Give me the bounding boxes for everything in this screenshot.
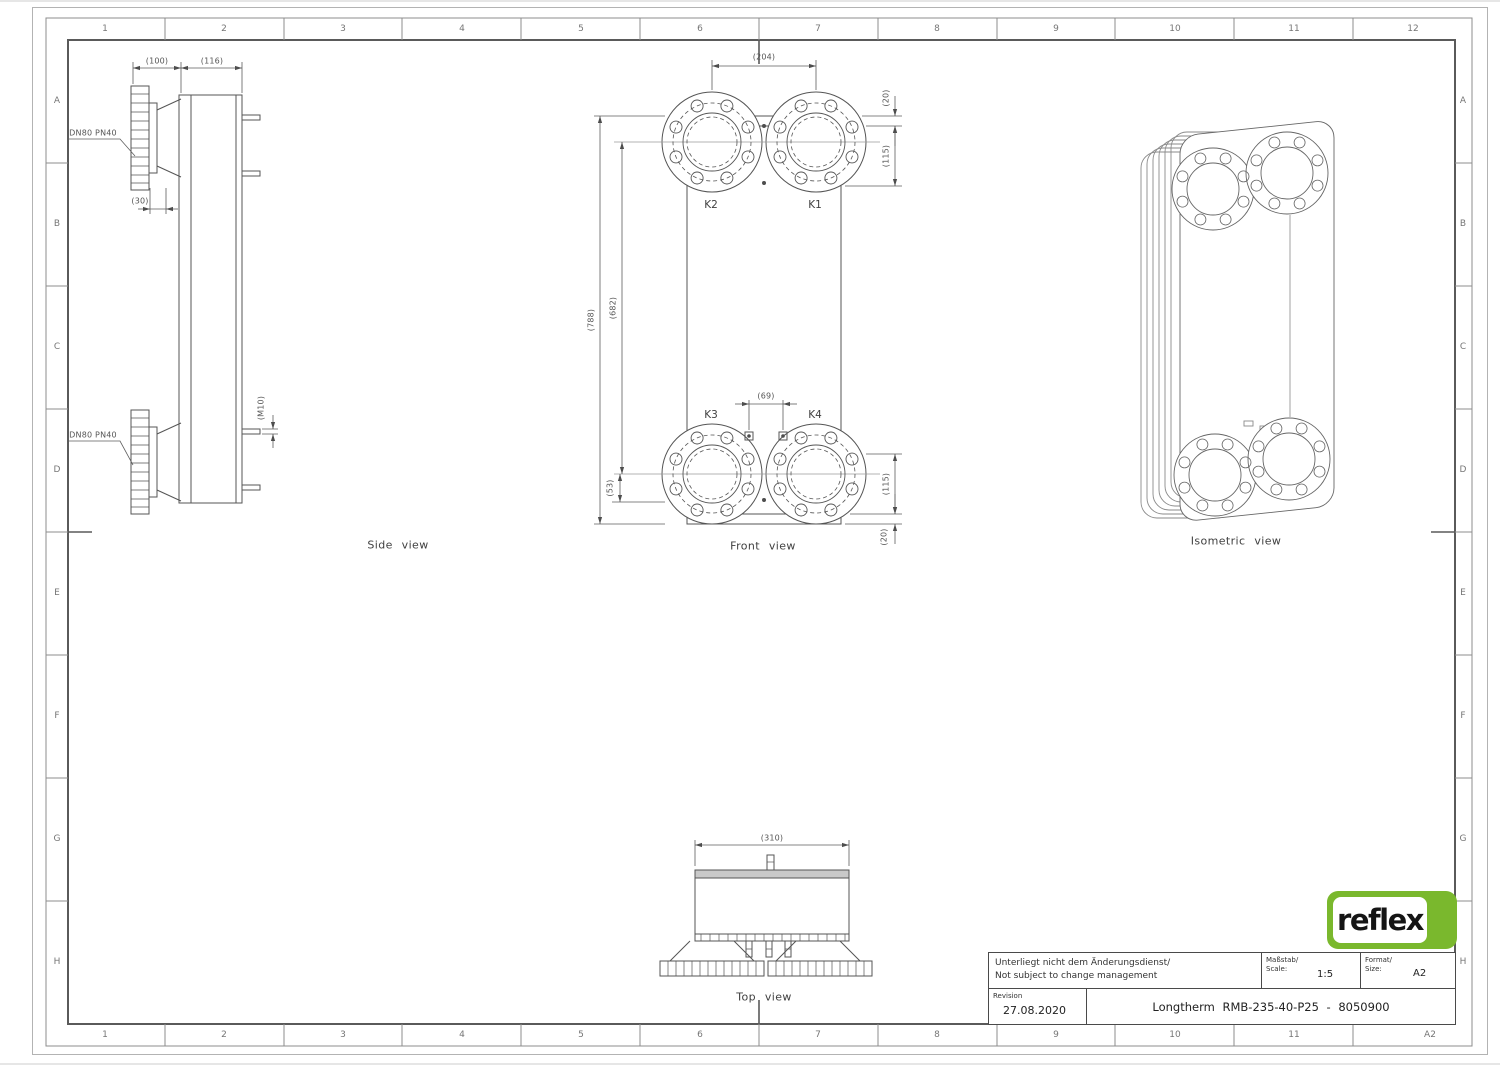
grid-row-right-d: D: [1460, 465, 1467, 475]
titleblock-scale-cell: Maßstab/ Scale: 1:5: [1261, 952, 1361, 989]
grid-col-top-11: 11: [1288, 24, 1299, 34]
grid-col-top-4: 4: [459, 24, 465, 34]
grid-col-top-9: 9: [1053, 24, 1059, 34]
grid-row-right-f: F: [1460, 711, 1465, 721]
side-dim-30: (30): [131, 197, 148, 206]
front-dim-682: (682): [609, 297, 618, 320]
top-view: [660, 840, 872, 976]
reflex-logo-text: reflex: [1337, 906, 1423, 935]
isometric-view: [1141, 120, 1334, 522]
grid-col-bottom-a2: A2: [1424, 1030, 1436, 1040]
grid-row-right-e: E: [1460, 588, 1466, 598]
front-dim-788: (788): [587, 309, 596, 332]
grid-col-bottom-8: 8: [934, 1030, 940, 1040]
grid-row-left-d: D: [54, 465, 61, 475]
front-dim-115-bottom: (115): [882, 473, 891, 496]
side-dim-116: (116): [201, 57, 224, 66]
port-label-k1: K1: [808, 199, 822, 211]
grid-col-bottom-5: 5: [578, 1030, 584, 1040]
front-dim-53: (53): [606, 479, 615, 496]
format-label-en: Size:: [1365, 965, 1392, 974]
grid-col-top-5: 5: [578, 24, 584, 34]
front-dim-69: (69): [757, 392, 774, 401]
drawing-title: Longtherm RMB-235-40-P25 - 8050900: [1087, 1000, 1455, 1014]
front-dim-115-top: (115): [882, 145, 891, 168]
side-flange-top-label: DN80 PN40: [69, 129, 117, 138]
port-label-k3: K3: [704, 409, 718, 421]
titleblock-format-cell: Format/ Size: A2: [1360, 952, 1456, 989]
grid-row-right-g: G: [1460, 834, 1467, 844]
grid-row-left-h: H: [54, 957, 61, 967]
grid-col-bottom-10: 10: [1169, 1030, 1180, 1040]
scale-value: 1:5: [1317, 969, 1333, 980]
grid-row-left-e: E: [54, 588, 60, 598]
grid-col-bottom-3: 3: [340, 1030, 346, 1040]
grid-row-right-h: H: [1460, 957, 1467, 967]
reflex-logo-inner: reflex: [1333, 897, 1427, 943]
grid-row-left-g: G: [54, 834, 61, 844]
grid-row-right-b: B: [1460, 219, 1466, 229]
drawing-linework: [0, 2, 1500, 1063]
grid-col-bottom-1: 1: [102, 1030, 108, 1040]
grid-row-left-c: C: [54, 342, 60, 352]
grid-col-top-12: 12: [1407, 24, 1418, 34]
grid-row-left-b: B: [54, 219, 60, 229]
grid-col-top-7: 7: [815, 24, 821, 34]
note-line1: Unterliegt nicht dem Änderungsdienst/: [995, 957, 1255, 970]
grid-row-left-f: F: [54, 711, 59, 721]
front-view: [594, 60, 902, 544]
format-value: A2: [1413, 968, 1426, 979]
front-dim-20-top: (20): [882, 89, 891, 106]
port-label-k4: K4: [808, 409, 822, 421]
grid-col-top-6: 6: [697, 24, 703, 34]
titleblock-title-cell: Longtherm RMB-235-40-P25 - 8050900: [1086, 988, 1456, 1025]
titleblock-revision-cell: Revision 27.08.2020: [988, 988, 1087, 1025]
grid-col-bottom-4: 4: [459, 1030, 465, 1040]
note-line2: Not subject to change management: [995, 970, 1255, 983]
scale-label-de: Maßstab/: [1266, 956, 1298, 965]
port-label-k2: K2: [704, 199, 718, 211]
grid-col-bottom-7: 7: [815, 1030, 821, 1040]
top-view-label: Top view: [736, 991, 792, 1004]
grid-col-bottom-6: 6: [697, 1030, 703, 1040]
scale-label-en: Scale:: [1266, 965, 1298, 974]
grid-row-right-c: C: [1460, 342, 1466, 352]
front-view-label: Front view: [730, 540, 796, 553]
grid-col-top-1: 1: [102, 24, 108, 34]
format-label-de: Format/: [1365, 956, 1392, 965]
grid-col-bottom-11: 11: [1288, 1030, 1299, 1040]
grid-row-right-a: A: [1460, 96, 1466, 106]
side-view-label: Side view: [367, 539, 428, 552]
grid-col-top-3: 3: [340, 24, 346, 34]
reflex-logo: reflex: [1327, 891, 1457, 949]
side-dim-100: (100): [146, 57, 169, 66]
grid-col-top-10: 10: [1169, 24, 1180, 34]
grid-col-top-8: 8: [934, 24, 940, 34]
top-dim-310: (310): [761, 834, 784, 843]
grid-col-bottom-2: 2: [221, 1030, 227, 1040]
drawing-sheet: 1 2 3 4 5 6 7 8 9 10 11 12 1 2 3 4 5 6 7…: [0, 0, 1500, 1065]
revision-date: 27.08.2020: [1003, 1004, 1066, 1017]
isometric-view-label: Isometric view: [1191, 535, 1282, 548]
grid-col-top-2: 2: [221, 24, 227, 34]
side-dim-m10: (M10): [257, 396, 266, 420]
side-flange-bottom-label: DN80 PN40: [69, 431, 117, 440]
front-dim-204: (204): [753, 53, 776, 62]
revision-label: Revision: [993, 992, 1022, 1001]
front-dim-20-bottom: (20): [880, 528, 889, 545]
grid-col-bottom-9: 9: [1053, 1030, 1059, 1040]
grid-row-left-a: A: [54, 96, 60, 106]
titleblock-note-cell: Unterliegt nicht dem Änderungsdienst/ No…: [988, 952, 1262, 989]
